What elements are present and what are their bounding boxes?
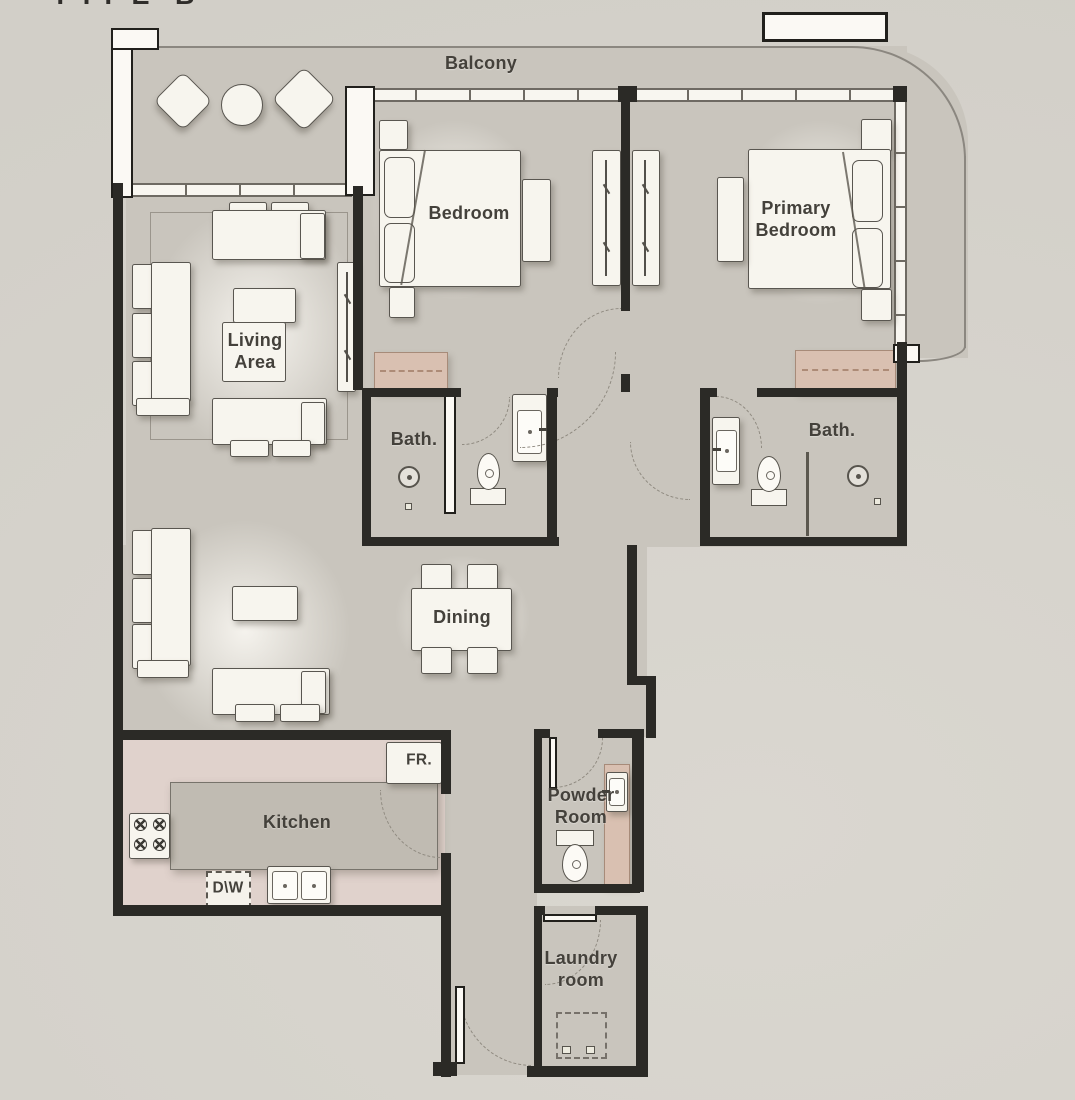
bath1-wall-bottom xyxy=(362,537,559,546)
stove-burner xyxy=(153,838,166,851)
dining-chair xyxy=(421,647,452,674)
top-column-marker xyxy=(762,12,888,42)
powder-door-leaf xyxy=(549,737,557,789)
balcony-wall-left xyxy=(111,28,133,198)
toilet-bowl xyxy=(757,456,781,492)
primary-side-window xyxy=(894,100,907,350)
balcony-divider-wall xyxy=(345,86,375,196)
laundry-door-leaf xyxy=(543,914,597,922)
sofa-cushion xyxy=(235,704,275,722)
living-window xyxy=(133,183,352,197)
room-label-powder-room: Powder Room xyxy=(548,785,615,829)
room-label-bath-2: Bath. xyxy=(809,420,856,442)
wardrobe-rail xyxy=(644,160,646,276)
bedroom-window xyxy=(363,88,619,102)
bed-pillow xyxy=(384,157,415,218)
console-rail xyxy=(346,272,348,382)
wall-living-bedroom xyxy=(353,186,363,390)
bath1-wall-left xyxy=(362,388,371,546)
wall-right-cap xyxy=(893,86,907,102)
room-label-primary-bedroom: Primary Bedroom xyxy=(755,198,836,242)
shower-head xyxy=(398,466,420,488)
nightstand xyxy=(861,119,892,152)
sofa-cushion xyxy=(280,704,320,722)
closet xyxy=(795,350,896,392)
bed-pillow xyxy=(852,160,883,222)
wall-center-divider xyxy=(621,95,630,311)
bath2-wall-top xyxy=(757,388,907,397)
sink-basin xyxy=(272,871,298,900)
coffee-table xyxy=(233,288,296,323)
balcony-round-table xyxy=(221,84,263,126)
bath2-wall-bottom xyxy=(700,537,907,546)
kitchen-wall-right xyxy=(441,740,451,794)
floor-drain xyxy=(874,498,881,505)
bath1-wall-top xyxy=(362,388,461,397)
closet-dash xyxy=(380,370,442,372)
sofa-cushion xyxy=(132,530,153,575)
sofa-base xyxy=(137,660,189,678)
sofa-cushion xyxy=(272,440,311,457)
washer-tick xyxy=(586,1046,595,1054)
room-label-balcony: Balcony xyxy=(445,53,517,75)
appliance-label-dishwasher: D\W xyxy=(212,880,243,899)
room-label-bath-1: Bath. xyxy=(391,429,438,451)
toilet-bowl xyxy=(562,844,588,882)
room-label-kitchen: Kitchen xyxy=(263,812,331,834)
balcony-rail-right xyxy=(964,156,966,348)
sofa-cushion xyxy=(132,578,153,623)
wall-center-divider xyxy=(621,374,630,392)
stove-burner xyxy=(134,838,147,851)
sofa-cushion xyxy=(132,313,153,358)
closet-dash xyxy=(802,369,889,371)
wall-window-pier xyxy=(618,86,637,102)
corridor-wall-lower xyxy=(646,676,656,738)
sofa-body xyxy=(151,528,191,666)
corridor-wall-right xyxy=(627,545,637,685)
toilet-bowl xyxy=(477,453,500,490)
sofa-cushion xyxy=(230,440,269,457)
balcony-rail-end-curve xyxy=(918,346,966,362)
wall-left xyxy=(113,183,123,915)
side-table xyxy=(232,586,298,621)
powder-wall-right xyxy=(632,729,644,892)
bath1-wall-right xyxy=(547,392,557,545)
closet xyxy=(374,352,448,392)
bed-bench xyxy=(717,177,744,262)
appliance-label-fridge: FR. xyxy=(406,752,432,771)
primary-bedroom-window xyxy=(635,88,899,102)
floor-drain xyxy=(405,503,412,510)
faucet xyxy=(713,448,721,451)
shower-glass xyxy=(806,452,809,536)
kitchen-wall-top xyxy=(113,730,451,740)
entry-wall-left xyxy=(441,853,451,1077)
dining-chair xyxy=(467,647,498,674)
room-label-dining: Dining xyxy=(433,607,491,629)
dining-chair xyxy=(421,564,452,591)
kitchen-wall-bottom xyxy=(113,905,451,916)
balcony-rail-top xyxy=(130,46,852,48)
wall-bottom-right xyxy=(527,1066,648,1077)
sofa-body xyxy=(151,262,191,402)
entry-door-leaf xyxy=(455,986,465,1064)
nightstand xyxy=(379,120,408,150)
nightstand xyxy=(861,289,892,321)
sofa-chaise xyxy=(300,213,325,259)
stove-burner xyxy=(153,818,166,831)
balcony-wall-nub xyxy=(111,28,159,50)
laundry-wall-left xyxy=(534,906,542,1076)
stove-burner xyxy=(134,818,147,831)
plan-type-title: TYPE B xyxy=(52,0,204,11)
dining-chair xyxy=(467,564,498,591)
nightstand xyxy=(389,287,415,318)
laundry-wall-right xyxy=(636,906,648,1076)
powder-wall-left xyxy=(534,729,542,892)
sink-basin xyxy=(301,871,327,900)
bed-bench xyxy=(522,179,551,262)
bath2-wall-left xyxy=(700,388,710,546)
powder-wall-bottom xyxy=(534,884,640,893)
sofa-base xyxy=(136,398,190,416)
room-label-laundry-room: Laundry room xyxy=(544,948,617,992)
washer-tick xyxy=(562,1046,571,1054)
bath2-wall-right xyxy=(897,388,907,546)
wardrobe xyxy=(632,150,660,286)
floor-plan: TYPE B Balcony Bedroom Primary Bedroom L… xyxy=(0,0,1075,1100)
wardrobe-rail xyxy=(605,160,607,276)
toilet-tank xyxy=(470,488,506,505)
bath1-pier-wall xyxy=(444,394,456,514)
room-label-living-area: Living Area xyxy=(228,330,283,374)
room-label-bedroom: Bedroom xyxy=(428,203,509,225)
sofa-chaise xyxy=(301,402,325,445)
shower-head xyxy=(847,465,869,487)
sofa-cushion xyxy=(132,264,153,309)
